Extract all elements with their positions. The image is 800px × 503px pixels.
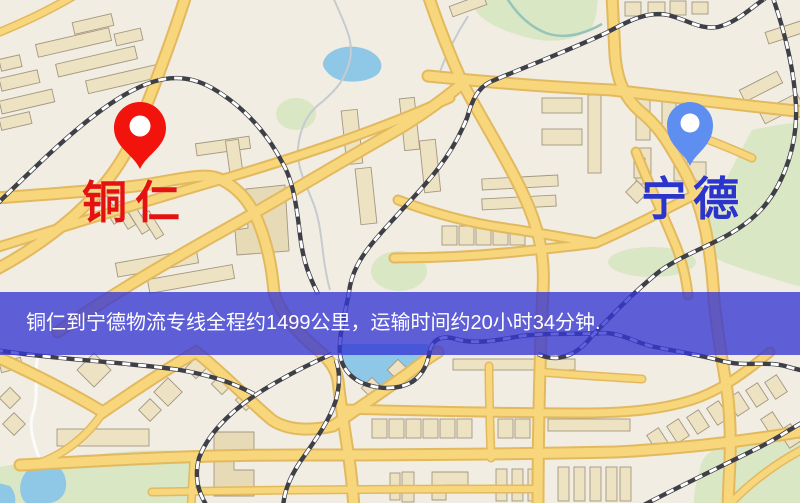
destination-city-label: 宁德	[641, 176, 745, 222]
map-view: 铜仁 宁德 铜仁到宁德物流专线全程约1499公里，运输时间约20小时34分钟.	[0, 0, 800, 503]
origin-city-label: 铜仁	[82, 180, 188, 225]
route-info-text: 铜仁到宁德物流专线全程约1499公里，运输时间约20小时34分钟.	[0, 292, 800, 355]
route-info-banner: 铜仁到宁德物流专线全程约1499公里，运输时间约20小时34分钟.	[0, 292, 800, 355]
map-canvas[interactable]	[0, 0, 800, 503]
